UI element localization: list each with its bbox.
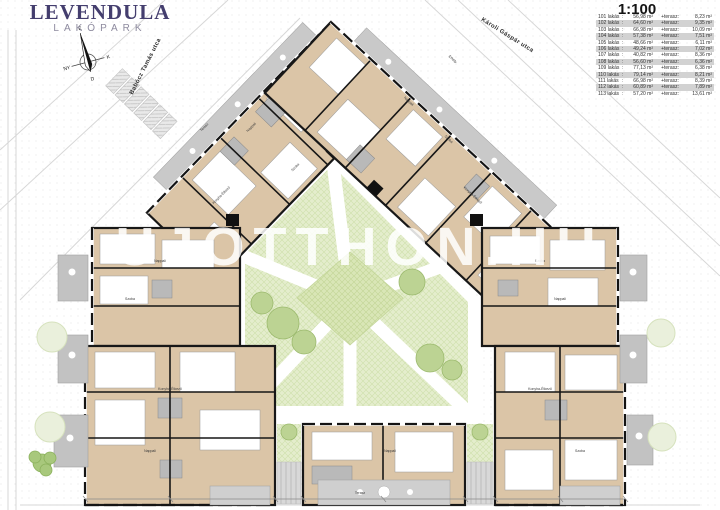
logo: LEVENDULA LAKÓPARK (22, 1, 178, 34)
svg-text:Konyha-Étkező: Konyha-Étkező (528, 386, 552, 391)
legend-unit: 113 lakás (598, 91, 622, 97)
legend-row: 113 lakás : 57,20 m² +terasz: 13,61 m² (596, 91, 714, 97)
wing-right-lower (495, 346, 625, 505)
svg-text:Szoba: Szoba (125, 297, 135, 301)
svg-text:Szoba: Szoba (535, 259, 545, 263)
svg-text:Konyha-Étkező: Konyha-Étkező (158, 386, 182, 391)
legend-area: 57,20 m² (627, 91, 653, 97)
logo-subtitle: LAKÓPARK (22, 23, 178, 34)
svg-text:Terasz: Terasz (355, 491, 366, 495)
logo-title: LEVENDULA (22, 1, 178, 23)
svg-text:Nappali: Nappali (144, 449, 156, 453)
wing-left-upper (92, 214, 240, 346)
svg-text:Nappali: Nappali (554, 297, 566, 301)
legend-terasz-area: 13,61 m² (679, 91, 712, 97)
legend-terasz-label: +terasz: (653, 91, 679, 97)
svg-text:Nappali: Nappali (154, 259, 166, 263)
wing-right-upper (470, 214, 618, 346)
wing-left-lower (85, 346, 275, 505)
svg-text:Nappali: Nappali (384, 449, 396, 453)
legend-table: 101 lakás : 56,98 m² +terasz: 8,23 m² 10… (596, 14, 714, 97)
svg-text:Szoba: Szoba (575, 449, 585, 453)
block-bottom-center (303, 424, 465, 505)
